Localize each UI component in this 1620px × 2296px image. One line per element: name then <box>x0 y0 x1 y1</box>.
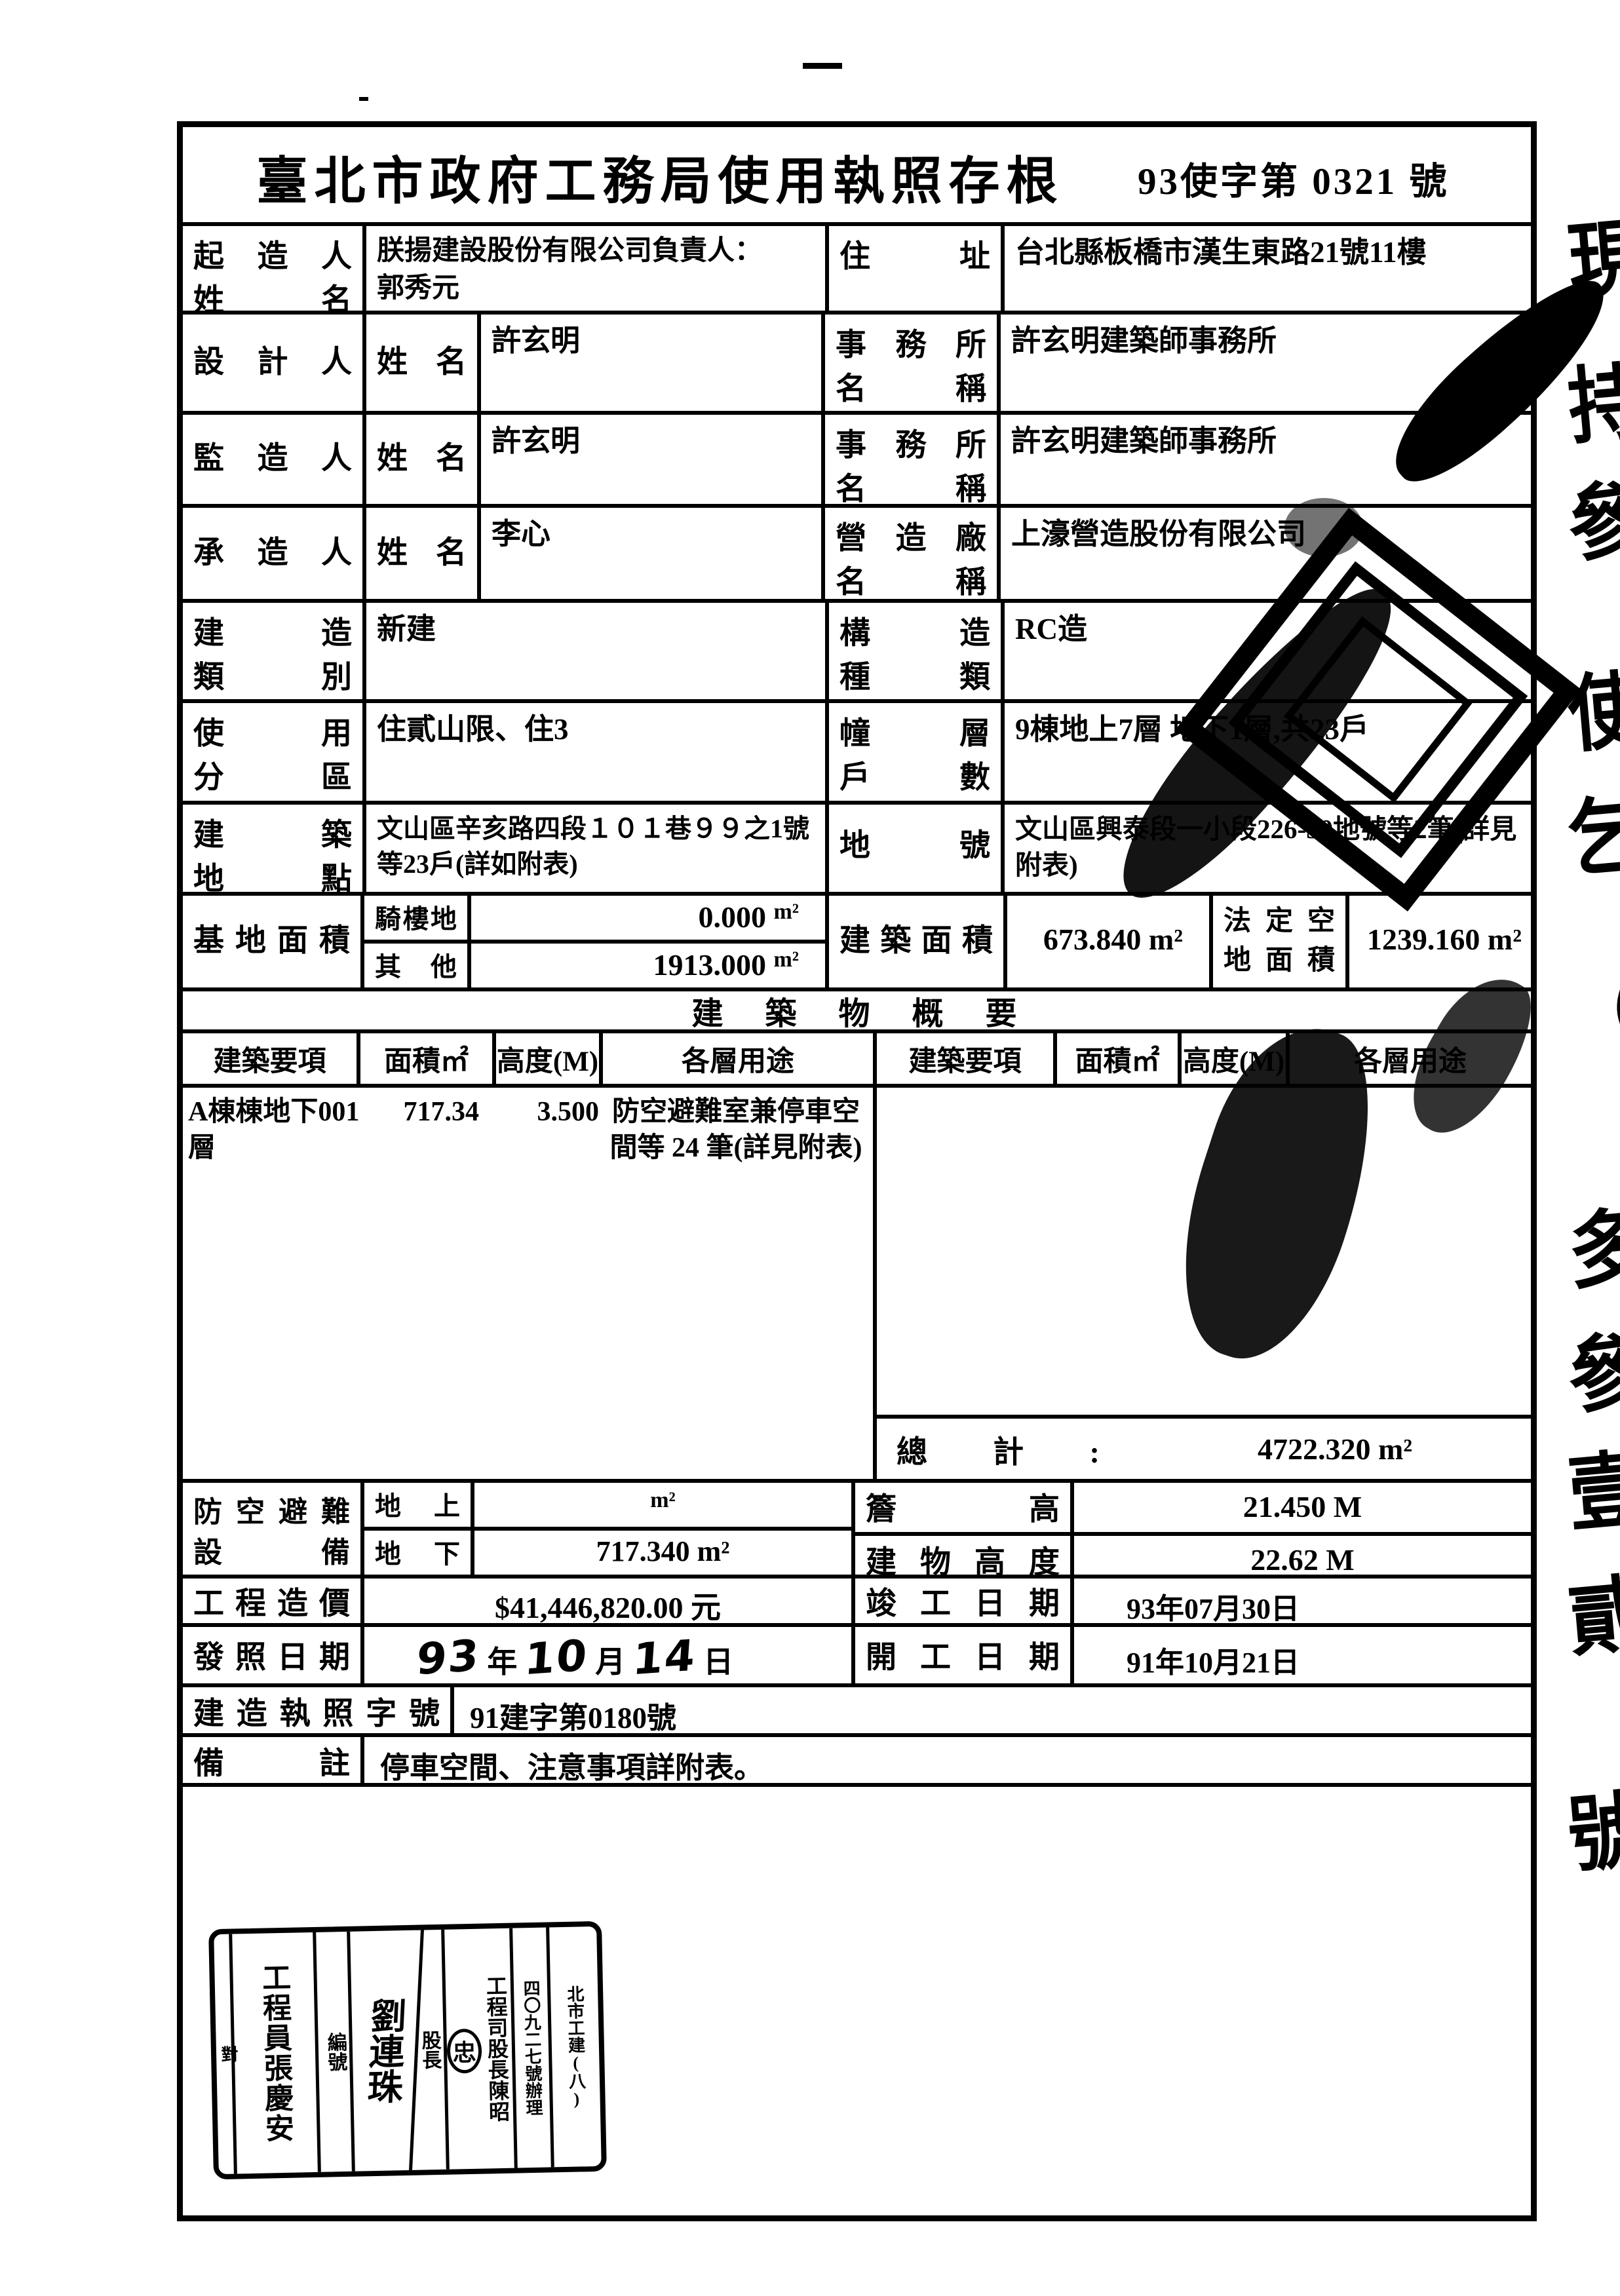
col-height-header: 高度(M) <box>496 1033 603 1084</box>
margin-glyph: 使 <box>1562 641 1620 768</box>
margin-glyph: 壹 <box>1562 1421 1620 1548</box>
total-label: 總 計 : <box>877 1426 1139 1472</box>
row-designer: 設 計 人 姓 名 許玄明 事 務 所 名 稱 許玄明建築師事務所 <box>183 311 1531 411</box>
name-sublabel: 姓 名 <box>366 315 481 411</box>
completion-label: 竣工日期 <box>855 1578 1074 1623</box>
air-below-row: 地 下 717.340 m² <box>364 1527 851 1575</box>
office-label: 事 務 所 名 稱 <box>825 415 1001 504</box>
title-row: 臺北市政府工務局使用執照存根 93使字第 0321 號 <box>183 127 1531 222</box>
issue-day-unit: 日 <box>703 1645 733 1679</box>
col-item-header: 建築要項 <box>183 1033 360 1084</box>
entry-item: A棟棟地下001層 <box>183 1088 360 1166</box>
air-raid-label: 防空避難 設 備 <box>183 1483 364 1575</box>
summary-left-area: A棟棟地下001層 717.34 3.500 防空避難室兼停車空間等 24 筆(… <box>183 1088 877 1479</box>
arcade-land-value: 0.000 m² <box>471 896 825 940</box>
margin-glyph: 乞 <box>1562 765 1620 892</box>
other-land-number: 1913.000 <box>653 948 766 982</box>
building-height-value: 22.62 M <box>1074 1536 1531 1575</box>
permit-number-label: 建造執照字號 <box>183 1687 454 1733</box>
stamp-signature-liu: 劉連珠 <box>347 1930 424 2172</box>
margin-glyph: 參 <box>1562 451 1620 578</box>
ink-speck <box>1284 498 1363 557</box>
building-height-row: 建物高度 22.62 M <box>855 1532 1531 1575</box>
legal-open-value: 1239.160 m² <box>1349 896 1531 987</box>
entry-area: 717.34 <box>360 1088 496 1130</box>
designer-name: 許玄明 <box>481 315 825 411</box>
margin-glyph: 號 <box>1562 1761 1620 1888</box>
legal-open-label: 法定空 地面積 <box>1213 896 1349 987</box>
contractor-name: 李心 <box>481 508 825 599</box>
air-above-row: 地 上 m² <box>364 1483 851 1527</box>
build-type-value: 新建 <box>366 603 829 699</box>
approval-stamp-box: 對 工程員張慶安 編號 劉連珠 股長 工程司股長陳昭 忠 四〇九二七號辦理 北市… <box>208 1921 607 2179</box>
site-area-label: 基地面積 <box>183 896 364 987</box>
zoning-value: 住貳山限、住3 <box>366 703 829 801</box>
issue-year-handwritten: 93 <box>415 1630 482 1683</box>
air-below-label: 地 下 <box>364 1531 474 1575</box>
note-value: 停車空間、注意事項詳附表。 <box>364 1737 1531 1783</box>
owner-label: 起 造 人 姓 名 <box>183 226 366 311</box>
row-cost-completion: 工程造價 $41,446,820.00 元 竣工日期 93年07月30日 <box>183 1575 1531 1623</box>
office-label: 事 務 所 名 稱 <box>825 315 1001 411</box>
issue-day-handwritten: 14 <box>631 1630 698 1683</box>
issue-year-unit: 年 <box>487 1645 517 1679</box>
issue-month-handwritten: 10 <box>523 1630 590 1683</box>
fold-mark <box>359 97 368 101</box>
building-area-value: 673.840 m² <box>1007 896 1213 987</box>
name-sublabel: 姓 名 <box>366 415 481 504</box>
stamp-engineer-name: 工程員張慶安 <box>232 1932 321 2174</box>
permit-number-value: 91建字第0180號 <box>454 1687 1531 1733</box>
col-item-header: 建築要項 <box>877 1033 1057 1084</box>
air-above-label: 地 上 <box>364 1483 474 1527</box>
cost-value: $41,446,820.00 元 <box>364 1578 855 1623</box>
margin-glyph: 參 <box>1562 1303 1620 1430</box>
entry-usage: 防空避難室兼停車空間等 24 筆(詳見附表) <box>603 1088 873 1166</box>
lot-label: 地 號 <box>829 805 1005 892</box>
margin-glyph: 貳 <box>1562 1545 1620 1672</box>
name-sublabel: 姓 名 <box>366 508 481 599</box>
row-air-raid-eave: 防空避難 設 備 地 上 m² 地 下 717.340 m² 簷 高 21.45… <box>183 1479 1531 1575</box>
owner-value: 朕揚建設股份有限公司負責人： 郭秀元 <box>366 226 829 311</box>
eave-label: 簷 高 <box>855 1483 1074 1532</box>
contractor-label: 承 造 人 <box>183 508 366 599</box>
builder-value: 上濠營造股份有限公司 <box>1001 508 1531 599</box>
stamp-office-code: 北市工建(八) <box>549 1926 602 2167</box>
personal-seal: 忠 <box>446 2029 482 2074</box>
margin-glyph: 持 <box>1562 333 1620 460</box>
note-label: 備 註 <box>183 1737 364 1783</box>
supervisor-name: 許玄明 <box>481 415 825 504</box>
builder-label: 營 造 廠 名 稱 <box>825 508 1001 599</box>
page-title: 臺北市政府工務局使用執照存根 <box>183 136 1138 214</box>
stamp-chief-text: 工程司股長陳昭 <box>480 1975 514 2122</box>
row-note: 備 註 停車空間、注意事項詳附表。 <box>183 1733 1531 1783</box>
entry-height: 3.500 <box>496 1088 603 1130</box>
col-area-header: 面積㎡ <box>1057 1033 1182 1084</box>
build-type-label: 建 造 類 別 <box>183 603 366 699</box>
margin-glyph: 現 <box>1562 189 1620 316</box>
row-issue-start: 發照日期 93 年 10 月 14 日 開工日期 91年10月21日 <box>183 1623 1531 1683</box>
cost-label: 工程造價 <box>183 1578 364 1623</box>
start-value: 91年10月21日 <box>1074 1627 1531 1683</box>
issue-label: 發照日期 <box>183 1627 364 1683</box>
designer-label: 設 計 人 <box>183 315 366 411</box>
address-value: 台北縣板橋市漢生東路21號11樓 <box>1005 226 1531 311</box>
completion-value: 93年07月30日 <box>1074 1578 1531 1623</box>
zoning-label: 使 用 分 區 <box>183 703 366 801</box>
site-value: 文山區辛亥路四段１０１巷９９之1號等23戶(詳如附表) <box>366 805 829 892</box>
arcade-land-unit: m² <box>773 900 799 924</box>
eave-height-row: 簷 高 21.450 M <box>855 1483 1531 1532</box>
other-land-unit: m² <box>773 947 799 972</box>
air-above-value: m² <box>474 1483 851 1527</box>
summary-section-row: 建 築 物 概 要 <box>183 987 1531 1029</box>
stamp-case-number: 四〇九二七號辦理 <box>512 1927 554 2168</box>
summary-section-title: 建 築 物 概 要 <box>691 987 1022 1033</box>
building-area-label: 建築面積 <box>829 896 1007 987</box>
row-site-area: 基地面積 騎樓地 0.000 m² 其 他 1913.000 m² <box>183 892 1531 987</box>
total-value: 4722.320 m² <box>1139 1432 1531 1466</box>
row-owner: 起 造 人 姓 名 朕揚建設股份有限公司負責人： 郭秀元 住 址 台北縣板橋市漢… <box>183 222 1531 311</box>
stamp-chief-name: 工程司股長陳昭 忠 <box>444 1928 518 2170</box>
supervisor-label: 監 造 人 <box>183 415 366 504</box>
other-land-row: 其 他 1913.000 m² <box>364 940 825 987</box>
arcade-land-row: 騎樓地 0.000 m² <box>364 896 825 940</box>
other-land-label: 其 他 <box>364 944 471 987</box>
site-label: 建 築 地 點 <box>183 805 366 892</box>
fold-mark <box>803 63 842 69</box>
floors-label: 幢 層 戶 數 <box>829 703 1005 801</box>
document-number: 93使字第 0321 號 <box>1138 145 1531 205</box>
structure-label: 構 造 種 類 <box>829 603 1005 699</box>
arcade-land-number: 0.000 <box>698 900 766 934</box>
scanned-permit-page: 臺北市政府工務局使用執照存根 93使字第 0321 號 起 造 人 姓 名 朕揚… <box>0 0 1620 2296</box>
arcade-land-label: 騎樓地 <box>364 896 471 940</box>
total-row: 總 計 : 4722.320 m² <box>877 1415 1531 1479</box>
address-label: 住 址 <box>829 226 1005 311</box>
margin-glyph: （ <box>1555 923 1620 1050</box>
air-below-value: 717.340 m² <box>474 1531 851 1575</box>
issue-value: 93 年 10 月 14 日 <box>364 1627 855 1683</box>
row-supervisor: 監 造 人 姓 名 許玄明 事 務 所 名 稱 許玄明建築師事務所 <box>183 411 1531 504</box>
start-label: 開工日期 <box>855 1627 1074 1683</box>
row-permit-number: 建造執照字號 91建字第0180號 <box>183 1683 1531 1733</box>
building-height-label: 建物高度 <box>855 1536 1074 1575</box>
issue-month-unit: 月 <box>595 1645 625 1679</box>
col-area-header: 面積㎡ <box>360 1033 496 1084</box>
col-usage-header: 各層用途 <box>603 1033 877 1084</box>
other-land-value: 1913.000 m² <box>471 944 825 987</box>
margin-glyph: 多 <box>1562 1178 1620 1305</box>
eave-value: 21.450 M <box>1074 1483 1531 1532</box>
